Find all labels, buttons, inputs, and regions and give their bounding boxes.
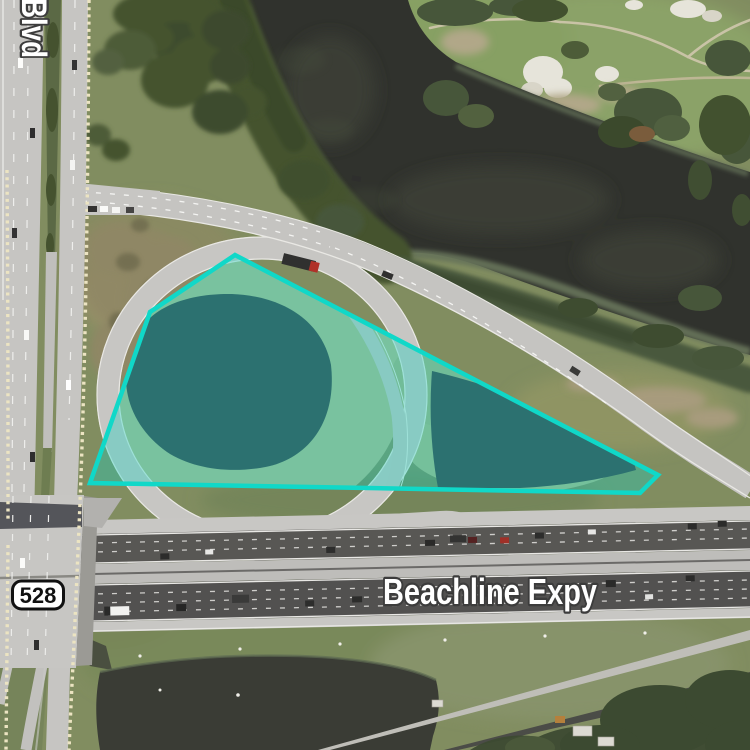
svg-text:Beachline Expy: Beachline Expy [383,571,597,612]
svg-text:528: 528 [20,583,57,608]
svg-text:Blvd: Blvd [14,0,53,58]
